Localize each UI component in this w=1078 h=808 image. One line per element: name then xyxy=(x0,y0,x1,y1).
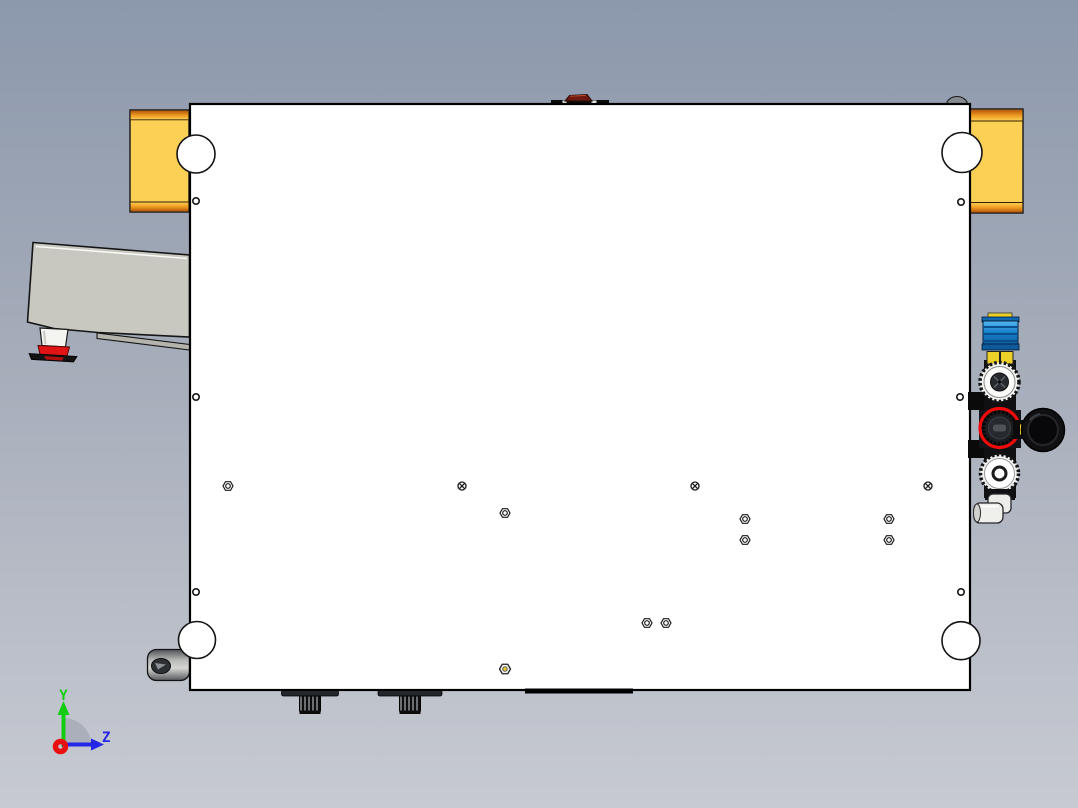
edge-hole[interactable] xyxy=(193,394,199,400)
cross-screw[interactable] xyxy=(691,482,699,490)
hex-screw[interactable] xyxy=(500,509,510,518)
brass-screw[interactable] xyxy=(500,664,511,674)
base-plate[interactable] xyxy=(190,104,970,694)
leveling-foot[interactable] xyxy=(282,691,339,715)
scene-svg: Y Z xyxy=(0,0,1078,808)
leveling-foot[interactable] xyxy=(378,691,442,715)
mount-tab xyxy=(968,392,985,410)
hex-screw[interactable] xyxy=(884,515,894,524)
silencer-cap[interactable] xyxy=(982,313,1019,350)
filter-knob[interactable] xyxy=(980,363,1019,402)
drain-knob[interactable] xyxy=(981,455,1019,493)
edge-hole[interactable] xyxy=(193,198,199,204)
y-axis-label: Y xyxy=(59,688,68,704)
corner-hole[interactable] xyxy=(177,135,215,173)
robot-arm[interactable] xyxy=(28,243,190,363)
edge-hole[interactable] xyxy=(958,589,964,595)
rail-bottom-chamfer xyxy=(131,202,189,211)
cross-screw[interactable] xyxy=(924,482,932,490)
hex-screw[interactable] xyxy=(642,619,652,628)
rail-top-chamfer xyxy=(969,110,1023,121)
hex-screw[interactable] xyxy=(884,536,894,545)
rail-bottom-chamfer xyxy=(969,203,1023,213)
hex-screw[interactable] xyxy=(661,619,671,628)
elbow-fitting[interactable] xyxy=(974,494,1012,523)
corner-hole[interactable] xyxy=(179,622,216,659)
edge-hole[interactable] xyxy=(957,394,963,400)
hex-screw[interactable] xyxy=(740,536,750,545)
orientation-triad[interactable]: Y Z xyxy=(56,688,111,752)
cross-screw[interactable] xyxy=(458,482,466,490)
edge-hole[interactable] xyxy=(958,199,964,205)
edge-hole[interactable] xyxy=(193,589,199,595)
pneumatic-assembly[interactable] xyxy=(968,313,1065,523)
cad-viewport: Y Z xyxy=(0,0,1078,808)
corner-hole[interactable] xyxy=(942,133,982,173)
x-axis-origin xyxy=(56,742,66,752)
plate-bottom-lip xyxy=(525,689,633,694)
corner-hole[interactable] xyxy=(942,622,980,660)
rotation-sector xyxy=(64,718,92,746)
hex-screw[interactable] xyxy=(740,515,750,524)
hex-screw[interactable] xyxy=(223,482,233,491)
z-axis-label: Z xyxy=(102,730,110,746)
rail-top-chamfer xyxy=(131,111,189,120)
end-clamp[interactable] xyxy=(148,650,190,681)
